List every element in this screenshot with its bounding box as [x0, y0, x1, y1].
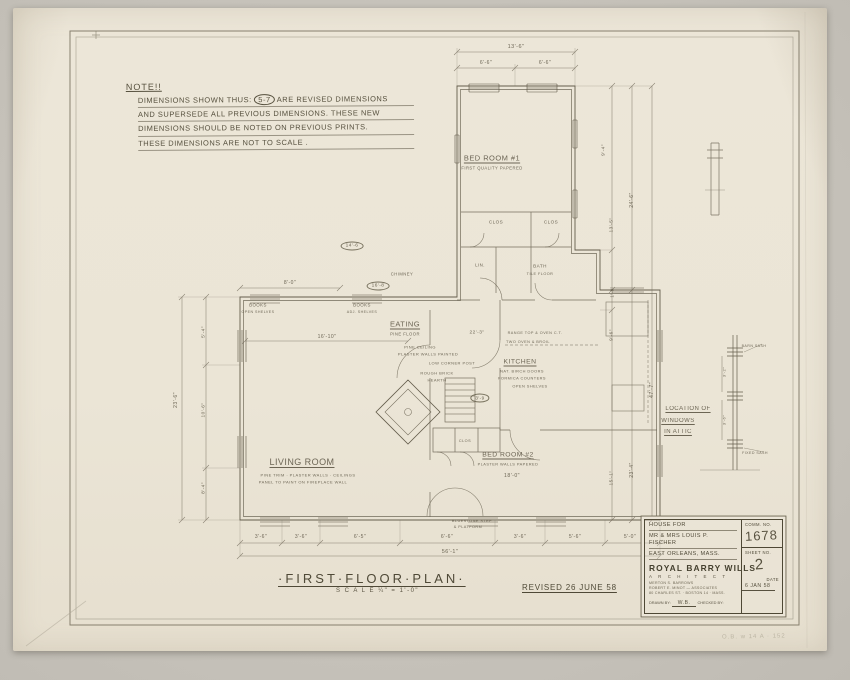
plan-label: CLOS: [459, 439, 471, 443]
plan-label: 6'-6": [441, 534, 453, 540]
firm-address: MERTON S. BARROWS ROBERT E. MINOT — ASSO…: [649, 581, 741, 597]
title-block-right: COMM. NO. 1678 SHEET NO. 2 DATE 6 JAN 58: [741, 520, 782, 613]
plan-label: 5'-6": [569, 534, 581, 540]
plan-label: 15'-1": [610, 471, 615, 486]
plan-label: LIN.: [475, 263, 485, 268]
plan-label: 5'-0": [624, 534, 636, 540]
room-label-bedroom1: BED ROOM #1: [464, 154, 520, 163]
plan-label: CLOS: [544, 220, 558, 225]
plan-label: 24'-6": [629, 192, 635, 207]
plan-label: BATH: [533, 264, 547, 269]
drawn-by-value: W.B.: [672, 600, 697, 607]
plan-label: PLASTER WALLS PAPERED: [478, 462, 539, 467]
plan-label: BARN SASH: [742, 344, 767, 348]
title-block-left: HOUSE FOR MR & MRS LOUIS P. FISCHER EAST…: [649, 522, 741, 606]
room-label-bedroom2: BED ROOM #2: [482, 452, 533, 459]
plan-label: 5'-4": [202, 326, 207, 338]
drawn-by-row: DRAWN BY: W.B. CHECKED BY:: [649, 600, 741, 607]
plan-label: 8'-0": [284, 280, 296, 286]
plan-label: 22'-3": [470, 331, 485, 336]
plan-label: & PLATFORM: [454, 525, 482, 529]
plan-label: ADJ. SHELVES: [347, 310, 378, 314]
plan-label: 56'-1": [442, 549, 458, 555]
plan-label: 9'-6": [610, 329, 615, 341]
sheet-no-value: 2: [741, 553, 782, 576]
plan-label: 3'-6": [255, 534, 267, 540]
drawing-scale: S C A L E ¼" = 1'-0": [336, 587, 419, 595]
plan-label: 18'-0": [504, 473, 520, 479]
firm-name: ROYAL BARRY WILLS: [649, 563, 741, 573]
plan-label: CLOS: [489, 220, 503, 225]
plan-label: LOW CORNER POST: [429, 361, 475, 366]
plan-label: 10'-6": [202, 403, 207, 418]
attic-note-line: LOCATION OF: [665, 406, 710, 412]
plan-label: PLASTER WALLS PAINTED: [398, 352, 458, 357]
plan-label: 23'-6": [173, 392, 179, 408]
room-label-living: LIVING ROOM: [270, 457, 335, 467]
plan-label: 3'-6": [514, 534, 526, 540]
revised-dimension: 3'-9: [470, 394, 489, 403]
plan-label: FIXED SASH: [742, 451, 768, 455]
revised-dimension: 14'-6: [341, 242, 364, 251]
plan-label: ROUGH BRICK: [420, 371, 453, 376]
plan-label: BOOKS: [249, 303, 267, 308]
plan-label: RANGE TOP & OVEN C.T.: [508, 331, 563, 335]
plan-label: 9'-4": [602, 144, 607, 156]
plan-label: 47'-7": [649, 382, 655, 398]
plan-label: OPEN SHELVES: [242, 310, 275, 314]
scanned-blueprint-page: { "note": { "heading": "NOTE!!", "line1_…: [0, 0, 850, 680]
pencil-annotation: O.B. w 14 A · 152: [722, 633, 786, 640]
drawing-title: ·FIRST·FLOOR·PLAN·: [278, 570, 466, 588]
plan-label: TILE FLOOR: [527, 272, 554, 276]
plan-label: PINE TRIM · PLASTER WALLS · CEILINGS: [261, 473, 356, 478]
room-label-kitchen: KITCHEN: [504, 359, 537, 366]
attic-note-line: IN ATTIC: [664, 429, 692, 435]
plan-label: 6'-6": [539, 60, 551, 66]
plan-label: 8'-4": [202, 482, 207, 494]
plan-label: 3'-2": [722, 367, 727, 377]
plan-label: 23'-4": [629, 462, 635, 477]
plan-label: OPEN SHELVES: [512, 384, 547, 389]
plan-label: 6'-6": [480, 60, 492, 66]
plan-label: BLUESTONE STEP: [452, 519, 492, 523]
plan-label: BOOKS: [353, 303, 371, 308]
project-line: MR & MRS LOUIS P. FISCHER: [649, 533, 737, 549]
project-line: HOUSE FOR: [649, 522, 737, 531]
attic-note-line: WINDOWS: [661, 418, 694, 424]
title-block: HOUSE FOR MR & MRS LOUIS P. FISCHER EAST…: [644, 519, 783, 614]
plan-label: 3'-6": [295, 534, 307, 540]
plan-label: 3'-6": [722, 415, 727, 425]
plan-label: 1'-8": [610, 286, 615, 297]
plan-label: NAT. BIRCH DOORS: [500, 369, 544, 374]
revision-date: REVISED 26 JUNE 58: [522, 583, 617, 594]
comm-no-value: 1678: [742, 526, 783, 546]
project-line: EAST ORLEANS, MASS.: [649, 551, 737, 560]
plan-label: 13'-5": [610, 218, 615, 233]
plan-label: TWO OVEN & BROIL: [506, 340, 550, 344]
plan-label: FIRST QUALITY PAPERED: [461, 166, 522, 171]
plan-label: 13'-6": [508, 44, 525, 50]
plan-label: CHIMNEY: [391, 272, 413, 277]
firm-title: A R C H I T E C T: [649, 574, 741, 579]
plan-label: 6'-5": [354, 534, 366, 540]
revised-dimension: 16'-8: [367, 282, 390, 291]
plan-label: HEARTH: [427, 378, 446, 383]
plan-label: PINE FLOOR: [390, 332, 420, 337]
plan-label: PINE CEILING: [404, 345, 436, 350]
room-label-eating: EATING: [390, 320, 420, 329]
date-value: 6 JAN 58: [742, 583, 775, 591]
plan-label: FORMICA COUNTERS: [498, 376, 546, 381]
plan-label: 16'-10": [318, 334, 337, 340]
plan-label: PANEL TO PAINT ON FIREPLACE WALL: [259, 480, 347, 485]
